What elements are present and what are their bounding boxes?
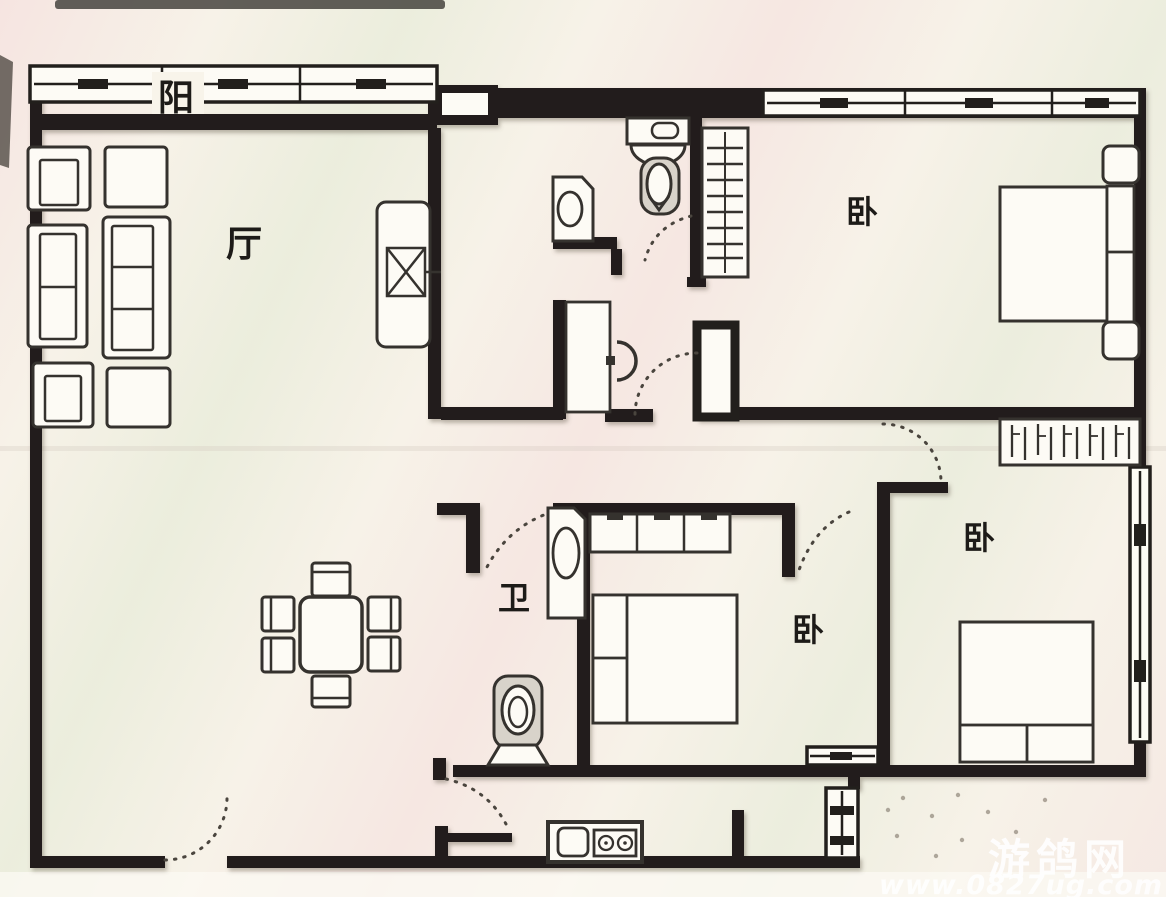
chair-icon [312,676,350,707]
wall-kitchen-stub-c [732,810,744,857]
room-label-bedroom-top: 卧 [846,193,878,231]
wall-bedroom-mid-post [782,503,795,577]
bedroom-top-window [763,90,1140,116]
balcony-window [30,66,437,102]
side-table-icon [105,147,167,207]
sink-icon [558,828,588,856]
photo-crease [0,446,1166,451]
wall-balcony-inner [30,114,437,130]
wall-bath1-south-b [605,409,653,422]
room-label-bedroom-br: 卧 [963,519,995,557]
nightstand-icon [1103,146,1139,183]
door-arc-entrance [165,798,227,860]
wall-bath2-west-stub [466,503,480,573]
chair-icon [312,563,350,596]
bedroom-br-window [1130,467,1150,742]
wall-bath1-south-a [441,407,563,420]
duct-shaft [697,325,735,417]
tv-stand-icon [377,202,441,347]
door-arc-hall [635,353,697,415]
room-label-balcony: 阳 [158,78,194,119]
closet-hangers-icon [1000,419,1140,465]
floor-plan: 阳 厅 卧 卧 卧 卫 游鸽网 www.0827ug.com [0,0,1166,897]
kitchen-window [826,788,858,858]
wall-bedroom-br-south [877,765,1146,777]
shower-hook-icon [617,342,636,380]
wall-kitchen-stub-a [433,758,446,780]
kitchen-fixtures [548,822,642,862]
bedroom-mid-furniture [590,514,737,723]
wall-bottom-1 [30,856,165,868]
chair-icon [262,597,294,631]
wardrobe-icon [702,128,748,277]
floor-plan-photo: 阳 厅 卧 卧 卧 卫 游鸽网 www.0827ug.com [0,0,1166,897]
toilet-icon [627,118,689,214]
bedroom-mid-window [807,747,878,765]
wall-basin-stub-end [611,249,622,275]
sofa-set [28,147,170,427]
wall-bottom-2 [227,856,860,868]
room-label-bathroom: 卫 [498,579,530,617]
bed-icon [1000,187,1107,321]
wardrobe-icon [590,514,730,552]
chair-icon [262,638,294,672]
toilet-icon [488,676,548,765]
wall-step-box-hollow [442,93,488,115]
door-arc-bedroom-br [883,424,941,482]
photo-edge-top [55,0,445,9]
photo-edge-left [0,55,13,168]
room-label-living: 厅 [226,224,262,265]
watermark: 游鸽网 www.0827ug.com [879,835,1163,897]
wall-bath1-inner [553,300,566,419]
side-table-icon [107,368,170,427]
bath-cabinet-icon [566,302,610,412]
wall-bath1-east [690,118,702,285]
kitchen-door-leaf [447,833,512,842]
dining-table-icon [300,597,362,672]
bedroom-br-furniture [960,419,1140,762]
wall-kitchen-stub-b [435,826,448,868]
door-arc-bath2 [487,512,552,567]
door-arc-bedroom-mid [798,512,849,573]
watermark-site-url: www.0827ug.com [879,870,1163,897]
door-arc-kitchen [446,779,509,830]
door-arc-bath1 [645,216,691,260]
chair-icon [368,597,400,631]
dining-set [262,563,400,707]
wall-south-mid [453,765,881,777]
bathroom-bottom-fixtures [488,508,585,765]
nightstand-icon [1103,322,1139,359]
room-label-bedroom-mid: 卧 [792,611,824,649]
bedroom-top-furniture [1000,146,1139,359]
wall-bedroom-br-west [877,482,890,765]
chair-icon [368,637,400,671]
